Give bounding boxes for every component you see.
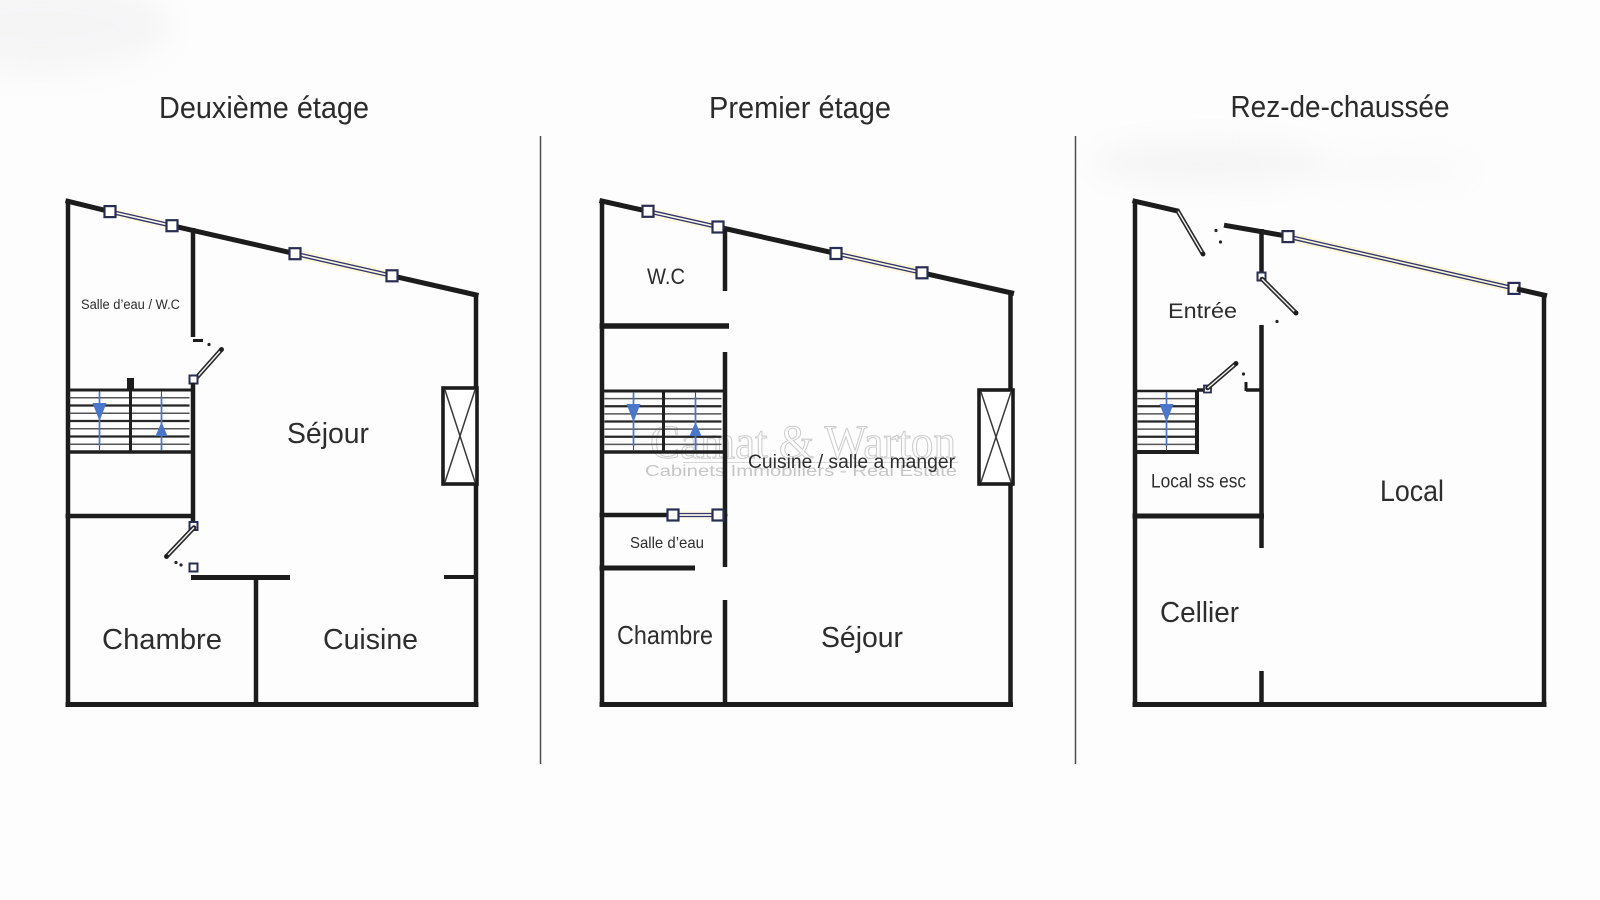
svg-text:Cellier: Cellier (1160, 597, 1239, 629)
svg-text:Local: Local (1380, 475, 1444, 508)
svg-text:Séjour: Séjour (287, 418, 369, 450)
svg-text:Salle d’eau: Salle d’eau (630, 535, 704, 552)
svg-text:Chambre: Chambre (617, 620, 713, 650)
svg-text:W.C: W.C (647, 264, 685, 289)
svg-text:Séjour: Séjour (821, 622, 903, 654)
svg-text:Chambre: Chambre (102, 624, 222, 656)
svg-text:Salle d’eau / W.C: Salle d’eau / W.C (81, 297, 180, 312)
svg-text:Entrée: Entrée (1168, 299, 1237, 323)
svg-text:Rez-de-chaussée: Rez-de-chaussée (1231, 89, 1450, 124)
svg-text:Deuxième étage: Deuxième étage (159, 90, 369, 125)
svg-text:Premier étage: Premier étage (709, 90, 891, 125)
svg-text:Local ss esc: Local ss esc (1151, 471, 1246, 493)
svg-text:Cuisine / salle a manger: Cuisine / salle a manger (748, 452, 956, 473)
svg-text:Cuisine: Cuisine (323, 624, 418, 656)
